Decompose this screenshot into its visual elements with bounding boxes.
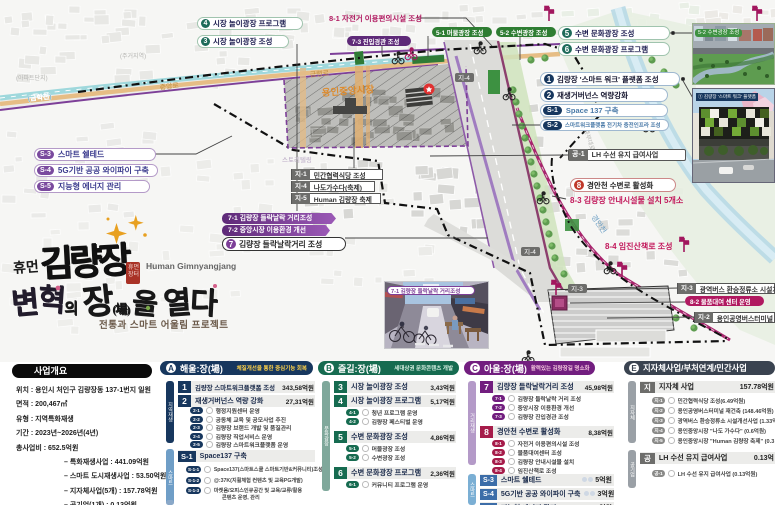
svg-text:지-3: 지-3 xyxy=(571,284,583,293)
svg-text:(주거지역): (주거지역) xyxy=(120,52,146,60)
svg-text:스토리텔링: 스토리텔링 xyxy=(282,155,312,164)
svg-text:(아파트단지): (아파트단지) xyxy=(16,74,48,82)
svg-text:지-4: 지-4 xyxy=(524,247,536,256)
svg-text:지-4: 지-4 xyxy=(458,73,470,82)
